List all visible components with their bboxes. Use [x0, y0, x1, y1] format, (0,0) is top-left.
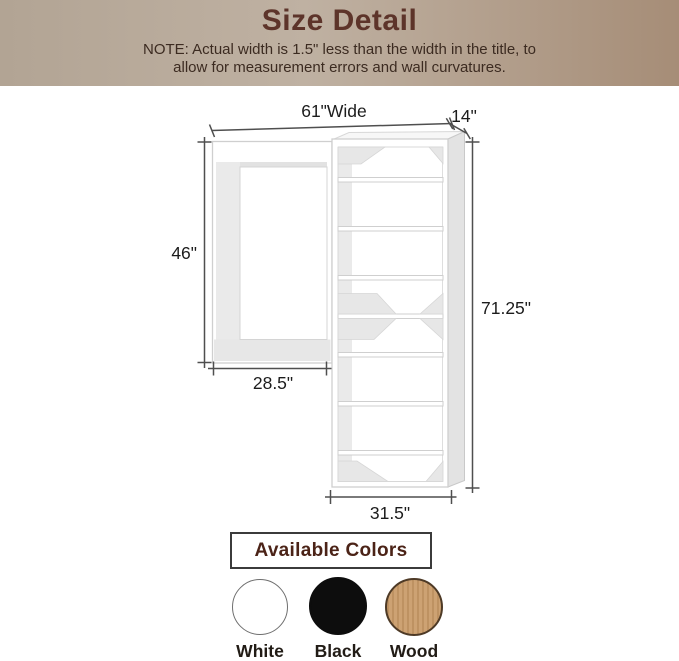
color-label-white: White [218, 641, 302, 661]
dimension-tower-width [325, 490, 457, 504]
dimension-depth-label: 14" [451, 106, 477, 126]
dimension-total-width-label: 61"Wide [301, 101, 367, 121]
hanging-section [213, 142, 333, 364]
shelf-tower [332, 139, 448, 487]
color-label-black: Black [296, 641, 380, 661]
color-swatch-black [309, 577, 367, 635]
color-swatch-white [232, 579, 288, 635]
closet-side-panel [448, 132, 465, 488]
dimension-total-height [466, 137, 480, 493]
available-colors-box: Available Colors [230, 532, 432, 569]
dimension-hanging-height-label: 46" [171, 243, 197, 263]
size-detail-infographic: Size Detail NOTE: Actual width is 1.5" l… [0, 0, 679, 661]
color-label-wood: Wood [372, 641, 456, 661]
dimension-total-height-label: 71.25" [481, 298, 531, 318]
closet-top-face [333, 132, 465, 140]
color-swatch-wood [385, 578, 443, 636]
dimension-tower-width-label: 31.5" [370, 503, 410, 523]
dimension-hanging-height [198, 137, 212, 368]
dimension-hanging-width-label: 28.5" [253, 373, 293, 393]
available-colors-title: Available Colors [255, 540, 408, 562]
